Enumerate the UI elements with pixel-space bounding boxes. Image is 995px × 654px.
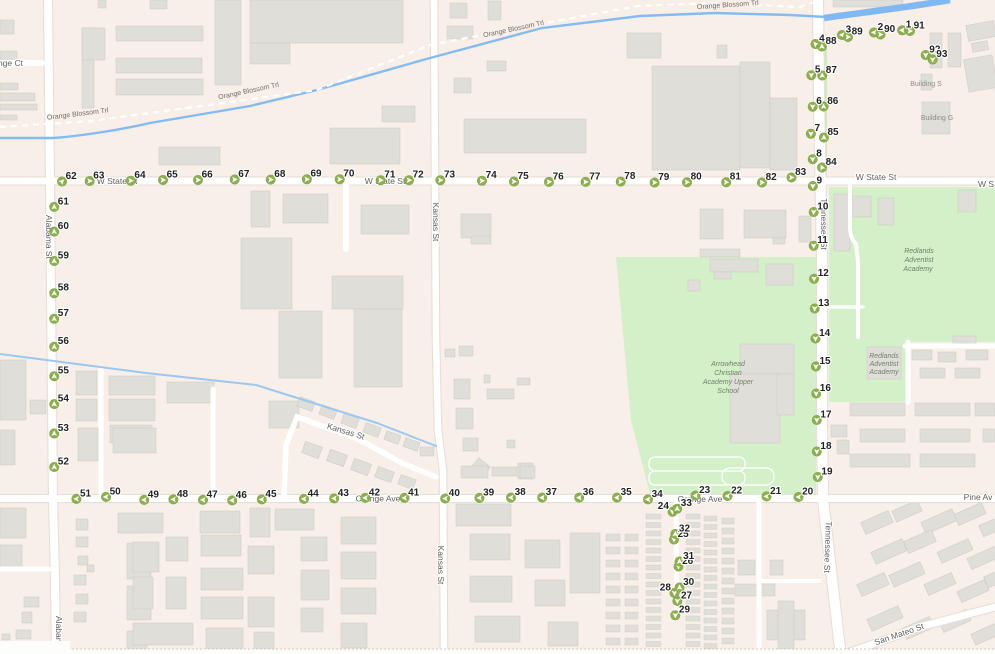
svg-text:Redlands: Redlands	[904, 248, 934, 255]
svg-text:28: 28	[660, 582, 672, 593]
svg-text:9: 9	[817, 175, 823, 186]
svg-text:13: 13	[818, 298, 830, 309]
svg-text:34: 34	[652, 489, 664, 500]
svg-text:58: 58	[58, 283, 70, 294]
svg-text:55: 55	[58, 366, 70, 377]
svg-text:81: 81	[730, 172, 742, 183]
svg-text:2: 2	[878, 22, 884, 33]
svg-text:19: 19	[821, 466, 833, 477]
svg-text:29: 29	[679, 605, 691, 616]
svg-text:70: 70	[343, 169, 355, 180]
svg-text:86: 86	[827, 96, 839, 107]
svg-text:39: 39	[483, 487, 495, 498]
svg-text:Tennessee St: Tennessee St	[822, 521, 834, 573]
svg-text:Adventist: Adventist	[904, 257, 935, 264]
svg-text:Pine Av: Pine Av	[964, 492, 993, 502]
svg-text:90: 90	[884, 24, 896, 35]
svg-text:1: 1	[906, 20, 912, 31]
svg-text:27: 27	[681, 590, 693, 601]
svg-text:30: 30	[683, 577, 695, 588]
svg-text:85: 85	[828, 127, 840, 138]
svg-text:42: 42	[369, 487, 381, 498]
svg-text:6: 6	[816, 96, 822, 107]
svg-text:40: 40	[449, 488, 461, 499]
svg-text:22: 22	[731, 485, 743, 496]
svg-text:79: 79	[658, 172, 670, 183]
svg-text:14: 14	[819, 328, 831, 339]
svg-text:38: 38	[515, 487, 527, 498]
svg-text:4: 4	[819, 33, 825, 44]
svg-text:72: 72	[413, 170, 425, 181]
svg-text:56: 56	[58, 336, 70, 347]
svg-text:60: 60	[58, 221, 70, 232]
svg-text:46: 46	[236, 490, 248, 501]
svg-text:Building G: Building G	[921, 115, 953, 122]
svg-text:83: 83	[795, 167, 807, 178]
svg-text:Academy Upper: Academy Upper	[702, 379, 754, 386]
svg-text:80: 80	[691, 172, 703, 183]
svg-text:57: 57	[58, 308, 70, 319]
svg-text:74: 74	[486, 170, 498, 181]
svg-text:10: 10	[817, 201, 829, 212]
svg-text:49: 49	[148, 489, 160, 500]
svg-text:75: 75	[518, 171, 530, 182]
svg-text:23: 23	[699, 485, 711, 496]
svg-text:61: 61	[58, 196, 70, 207]
svg-text:54: 54	[58, 394, 70, 405]
svg-text:12: 12	[818, 268, 830, 279]
svg-text:66: 66	[202, 169, 214, 180]
svg-text:67: 67	[238, 169, 250, 180]
svg-text:18: 18	[820, 441, 832, 452]
svg-text:20: 20	[802, 486, 814, 497]
svg-text:91: 91	[914, 20, 926, 31]
svg-text:17: 17	[820, 409, 832, 420]
svg-text:78: 78	[624, 171, 636, 182]
svg-text:64: 64	[134, 170, 146, 181]
svg-text:Kansas St: Kansas St	[431, 203, 441, 242]
svg-text:35: 35	[621, 487, 633, 498]
svg-text:71: 71	[384, 170, 396, 181]
svg-text:50: 50	[110, 486, 122, 497]
svg-text:Academy: Academy	[868, 369, 899, 376]
svg-text:31: 31	[683, 551, 695, 562]
svg-text:77: 77	[589, 171, 601, 182]
svg-text:59: 59	[58, 250, 70, 261]
svg-text:Kansas St: Kansas St	[436, 546, 446, 585]
svg-text:5: 5	[815, 65, 821, 76]
svg-text:37: 37	[546, 487, 558, 498]
svg-text:15: 15	[820, 356, 832, 367]
svg-text:88: 88	[826, 36, 838, 47]
svg-text:87: 87	[826, 65, 838, 76]
svg-text:8: 8	[816, 149, 822, 160]
svg-text:W S: W S	[978, 179, 994, 189]
svg-text:Christian: Christian	[714, 370, 742, 377]
svg-text:16: 16	[820, 383, 832, 394]
svg-text:48: 48	[177, 489, 189, 500]
svg-text:45: 45	[265, 489, 277, 500]
svg-text:51: 51	[80, 488, 92, 499]
svg-text:82: 82	[766, 172, 778, 183]
svg-text:Academy: Academy	[902, 266, 933, 273]
svg-text:33: 33	[681, 498, 693, 509]
svg-text:84: 84	[826, 157, 838, 168]
svg-text:47: 47	[207, 489, 219, 500]
svg-text:W State St: W State St	[856, 172, 897, 182]
svg-text:Alabama St: Alabama St	[44, 215, 54, 260]
svg-text:21: 21	[770, 486, 782, 497]
svg-text:Redlands: Redlands	[869, 353, 899, 360]
svg-text:69: 69	[311, 169, 323, 180]
svg-text:Adventist: Adventist	[869, 361, 900, 368]
svg-text:44: 44	[308, 488, 320, 499]
svg-text:7: 7	[815, 123, 821, 134]
svg-text:68: 68	[274, 169, 286, 180]
svg-text:24: 24	[658, 501, 670, 512]
svg-text:65: 65	[167, 169, 179, 180]
svg-text:41: 41	[408, 487, 420, 498]
svg-text:93: 93	[936, 49, 948, 60]
svg-text:76: 76	[553, 171, 565, 182]
svg-text:Arrowhead: Arrowhead	[710, 361, 746, 368]
svg-text:89: 89	[852, 26, 864, 37]
svg-text:School: School	[717, 388, 739, 395]
svg-text:Building S: Building S	[910, 81, 942, 88]
svg-text:Orange Ct: Orange Ct	[0, 58, 24, 68]
svg-text:52: 52	[58, 456, 70, 467]
svg-text:32: 32	[679, 523, 691, 534]
svg-text:63: 63	[93, 170, 105, 181]
svg-text:62: 62	[66, 171, 78, 182]
svg-text:36: 36	[583, 487, 595, 498]
svg-text:11: 11	[817, 235, 828, 246]
svg-text:43: 43	[338, 488, 350, 499]
svg-text:53: 53	[58, 423, 70, 434]
svg-text:73: 73	[444, 170, 456, 181]
